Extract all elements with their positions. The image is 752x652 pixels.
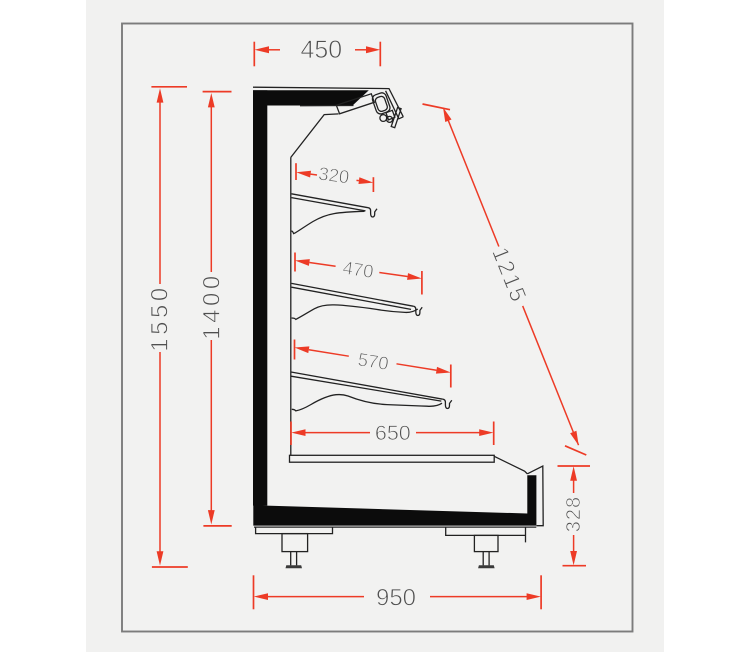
svg-text:650: 650: [375, 421, 411, 445]
svg-text:1550: 1550: [147, 284, 174, 351]
svg-text:450: 450: [300, 36, 342, 64]
svg-text:320: 320: [317, 163, 350, 188]
svg-text:470: 470: [341, 257, 375, 282]
svg-text:328: 328: [563, 496, 585, 532]
svg-text:1400: 1400: [198, 272, 225, 339]
svg-text:950: 950: [376, 585, 416, 612]
